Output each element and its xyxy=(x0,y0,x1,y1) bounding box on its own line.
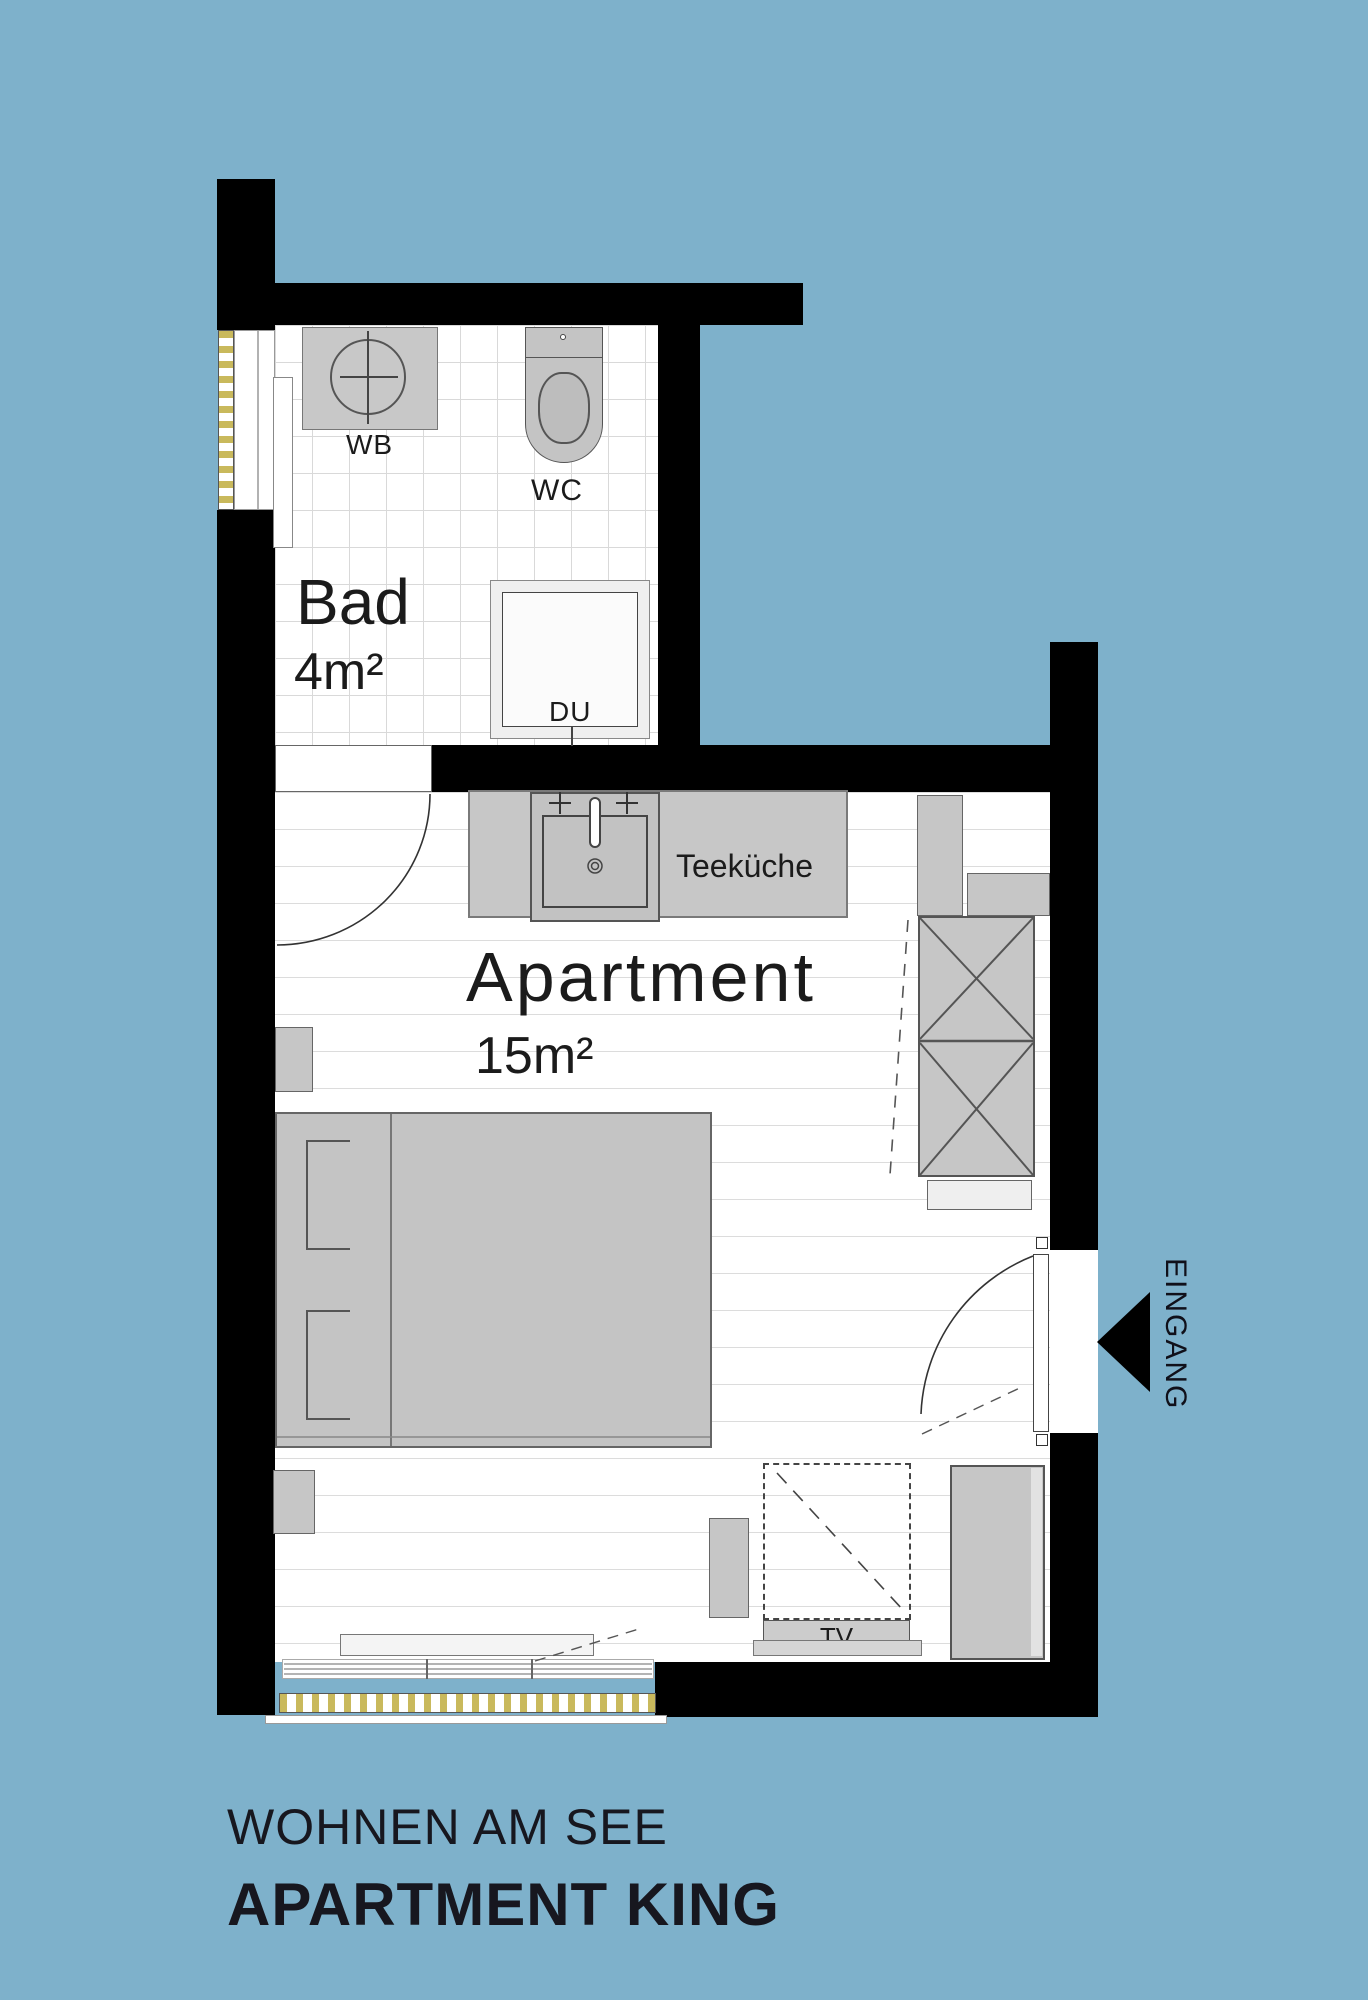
window-left-sill xyxy=(273,377,293,548)
faucet xyxy=(589,797,601,848)
toilet-label: WC xyxy=(531,476,583,506)
wardrobe xyxy=(918,916,1035,1177)
entry-threshold xyxy=(1050,1250,1098,1433)
window-bottom-frame xyxy=(282,1659,654,1679)
sideboard-strip xyxy=(1031,1468,1042,1656)
window-left-frame xyxy=(234,330,275,510)
apartment-name: Apartment xyxy=(466,942,816,1012)
washbasin-label: WB xyxy=(346,431,393,459)
entry-door-stop-bottom xyxy=(1036,1434,1048,1446)
wall-kitchen-back xyxy=(432,745,1098,792)
entrance-arrow-icon xyxy=(1097,1292,1150,1392)
window-bottom-hatch xyxy=(279,1693,656,1713)
wall-top xyxy=(217,283,803,325)
washbasin-unit xyxy=(302,327,438,430)
tv-board xyxy=(753,1640,922,1656)
wall-shelf xyxy=(967,873,1050,916)
wall-bathroom-right xyxy=(658,325,700,745)
apartment-title: APARTMENT KING xyxy=(227,1870,780,1939)
wall-right-pillar xyxy=(1050,642,1098,792)
apartment-area: 15m² xyxy=(475,1030,593,1082)
bathroom-name: Bad xyxy=(296,570,410,634)
nightstand xyxy=(273,1470,315,1534)
tv-zone xyxy=(763,1463,911,1620)
wall-right-upper xyxy=(1050,792,1098,1250)
pillow-top xyxy=(306,1140,350,1250)
entry-door-stop-top xyxy=(1036,1237,1048,1249)
bench xyxy=(340,1634,594,1656)
wall-bottom xyxy=(655,1662,1098,1717)
kitchen-label: Teeküche xyxy=(676,850,813,882)
entry-door-leaf xyxy=(1033,1254,1049,1432)
wardrobe-shelf xyxy=(927,1180,1032,1210)
side-table xyxy=(709,1518,749,1618)
toilet-flush-button xyxy=(560,334,566,340)
pillow-bottom xyxy=(306,1310,350,1420)
toilet-tank xyxy=(525,327,603,358)
entrance-label: EINGANG xyxy=(1156,1258,1190,1448)
window-bottom-sill xyxy=(265,1715,667,1724)
fridge-cabinet xyxy=(917,795,963,916)
shower-label: DU xyxy=(549,698,591,726)
toilet-seat xyxy=(538,372,590,444)
radiator xyxy=(275,1027,313,1092)
project-title: WOHNEN AM SEE xyxy=(227,1798,668,1856)
bathroom-area: 4m² xyxy=(294,646,384,698)
window-left-hatch xyxy=(218,330,234,510)
wall-left xyxy=(217,510,275,1715)
bathroom-door-leaf xyxy=(275,745,432,792)
plan-canvas: WB WC DU Teeküche TV EINGANG Bad 4m² Apa… xyxy=(0,0,1368,2000)
